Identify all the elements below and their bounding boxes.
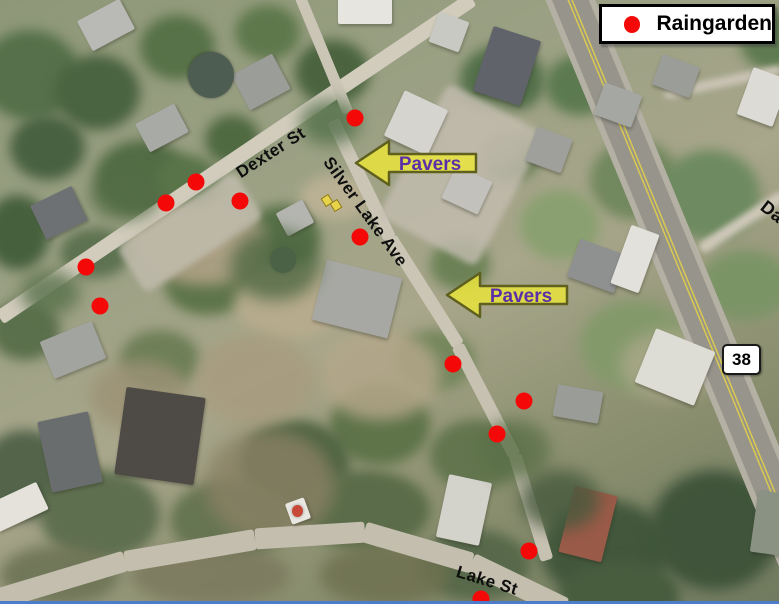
map-legend: Raingarden bbox=[599, 4, 775, 44]
terrain-blob bbox=[520, 470, 600, 530]
raingarden-dot bbox=[489, 426, 506, 443]
raingarden-dot-icon bbox=[624, 16, 640, 33]
terrain-blob bbox=[320, 330, 440, 420]
terrain-blob bbox=[20, 270, 80, 315]
route-38-shield: 38 bbox=[722, 344, 761, 375]
pavers-arrow-annotation-2: Pavers bbox=[444, 270, 570, 320]
round-yard-feature bbox=[292, 505, 303, 517]
route-38-label: 38 bbox=[732, 350, 751, 370]
raingarden-dot bbox=[92, 298, 109, 315]
terrain-blob bbox=[10, 115, 85, 180]
raingarden-dot bbox=[352, 229, 369, 246]
building-roof bbox=[231, 54, 290, 111]
terrain-blob bbox=[90, 170, 160, 220]
terrain-blob bbox=[235, 5, 300, 60]
street-label-partial-right-edge: Da bbox=[756, 196, 779, 227]
pavers-label-2: Pavers bbox=[490, 286, 552, 307]
pavers-arrow-annotation-1: Pavers bbox=[353, 138, 479, 188]
building-roof bbox=[77, 0, 135, 51]
legend-label: Raingarden bbox=[656, 12, 772, 36]
terrain-blob bbox=[55, 55, 140, 130]
raingarden-dot bbox=[516, 393, 533, 410]
raingarden-dot bbox=[188, 174, 205, 191]
raingarden-dot bbox=[445, 356, 462, 373]
terrain-blob bbox=[205, 430, 335, 540]
building-roof bbox=[338, 0, 392, 24]
raingarden-dot bbox=[521, 543, 538, 560]
round-yard-feature bbox=[188, 52, 234, 98]
raingarden-dot bbox=[158, 195, 175, 212]
pavers-label-1: Pavers bbox=[399, 154, 461, 175]
building-roof bbox=[553, 384, 604, 424]
building-roof bbox=[114, 387, 205, 485]
aerial-map: Dexter St Silver Lake Ave Lake St Da 38 … bbox=[0, 0, 779, 604]
raingarden-dot bbox=[347, 110, 364, 127]
raingarden-dot bbox=[232, 193, 249, 210]
raingarden-dot bbox=[78, 259, 95, 276]
terrain-blob bbox=[230, 230, 320, 300]
terrain-blob bbox=[195, 335, 315, 425]
